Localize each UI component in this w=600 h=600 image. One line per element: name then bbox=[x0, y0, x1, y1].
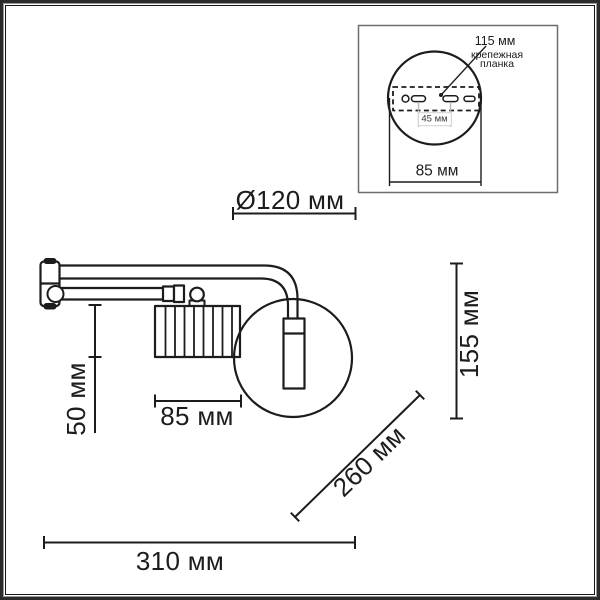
dim-total-length-label: 310 мм bbox=[136, 548, 224, 574]
dimension-lines bbox=[44, 207, 463, 549]
dim-height-label: 155 мм bbox=[456, 290, 482, 378]
inset-plate-length-label: 115 мм bbox=[475, 35, 516, 48]
ball-joint bbox=[190, 288, 205, 306]
diagram-canvas: Ø120 мм 155 мм 50 мм 85 мм 260 мм 310 мм… bbox=[0, 0, 600, 600]
dim-shade-height-label: 50 мм bbox=[63, 362, 89, 435]
dim-diameter-label: Ø120 мм bbox=[236, 187, 345, 213]
inset-slot-spacing-label: 45 мм bbox=[417, 112, 451, 126]
inset-plate-width-label: 85 мм bbox=[416, 163, 459, 179]
bulb-cylinder bbox=[284, 319, 305, 389]
arm-clamp bbox=[163, 286, 184, 303]
leader-dot bbox=[439, 93, 443, 97]
wall-lamp-dimension-drawing bbox=[0, 0, 600, 600]
ribbed-shade bbox=[155, 306, 240, 357]
inset-plate-name-line2: планка bbox=[480, 58, 514, 69]
dim-shade-width-label: 85 мм bbox=[160, 403, 233, 429]
bracket-pivot bbox=[48, 286, 64, 302]
